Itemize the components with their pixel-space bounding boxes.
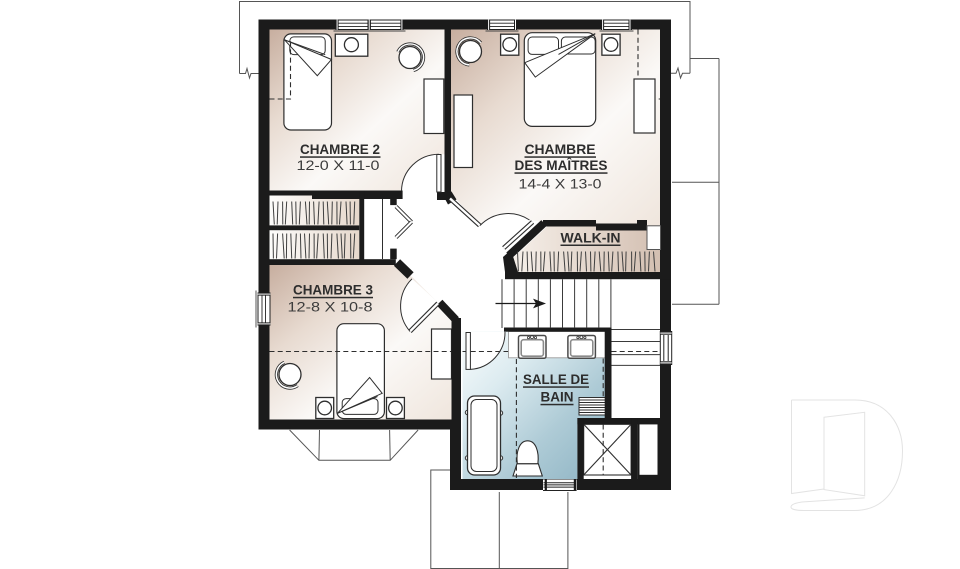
svg-text:CHAMBRE 2: CHAMBRE 2 (300, 141, 380, 157)
svg-text:WALK-IN: WALK-IN (561, 230, 621, 246)
svg-text:SALLE DE: SALLE DE (523, 371, 589, 387)
svg-text:BAIN: BAIN (541, 389, 574, 405)
svg-text:CHAMBRE 3: CHAMBRE 3 (293, 282, 373, 298)
svg-text:12-0 X 11-0: 12-0 X 11-0 (297, 158, 380, 173)
svg-text:14-4 X 13-0: 14-4 X 13-0 (519, 177, 602, 192)
svg-text:12-8 X 10-8: 12-8 X 10-8 (288, 300, 373, 315)
svg-text:DES MAÎTRES: DES MAÎTRES (515, 156, 608, 173)
svg-text:CHAMBRE: CHAMBRE (525, 141, 596, 157)
